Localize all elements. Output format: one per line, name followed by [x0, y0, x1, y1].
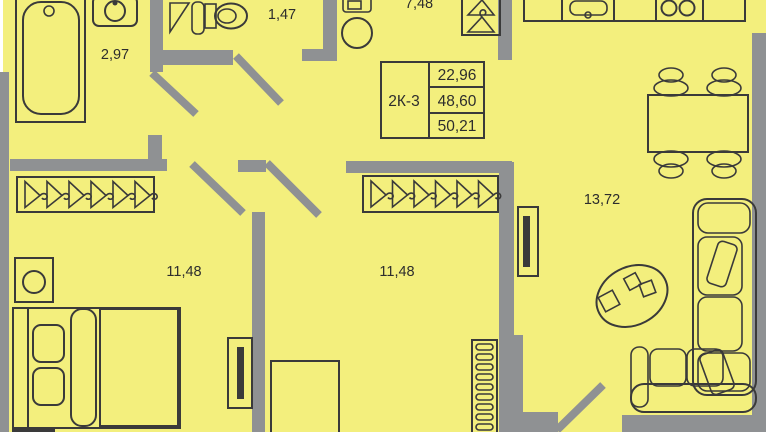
wall-segment — [0, 72, 9, 432]
wall-segment — [302, 49, 337, 61]
floor-plan: 2,97 1,47 7,48 2К-3 22,96 48,60 50,21 — [0, 0, 768, 432]
tv-screen — [237, 347, 244, 399]
wall-segment — [323, 0, 337, 50]
living-area-value: 22,96 — [438, 67, 477, 84]
washbasin-tap — [113, 1, 118, 6]
wall-segment — [158, 50, 233, 65]
wall-segment — [499, 335, 523, 432]
room-area-label: 11,48 — [166, 264, 201, 280]
wall-segment — [238, 160, 266, 172]
wall-segment — [10, 159, 167, 171]
room-area-label: 7,48 — [405, 0, 433, 12]
wall-segment — [752, 33, 766, 432]
wall-segment — [523, 412, 558, 432]
total-area-value: 48,60 — [438, 93, 477, 110]
margin — [0, 0, 3, 72]
wall-segment — [499, 162, 514, 340]
room-area-label: 1,47 — [268, 7, 296, 23]
room-area-label: 11,48 — [379, 264, 414, 280]
floor-plan-canvas: 2,97 1,47 7,48 2К-3 22,96 48,60 50,21 — [0, 0, 768, 432]
apartment-type-label: 2К-3 — [388, 93, 419, 110]
tv-screen — [523, 216, 530, 267]
room-area-label: 13,72 — [584, 192, 620, 208]
wall-segment — [148, 135, 162, 171]
wall-segment — [622, 415, 768, 432]
floor-background — [0, 0, 768, 432]
total-area-with-balcony-value: 50,21 — [438, 118, 477, 135]
wall-segment — [346, 161, 512, 173]
room-area-label: 2,97 — [101, 47, 129, 63]
wall-segment — [252, 212, 265, 432]
